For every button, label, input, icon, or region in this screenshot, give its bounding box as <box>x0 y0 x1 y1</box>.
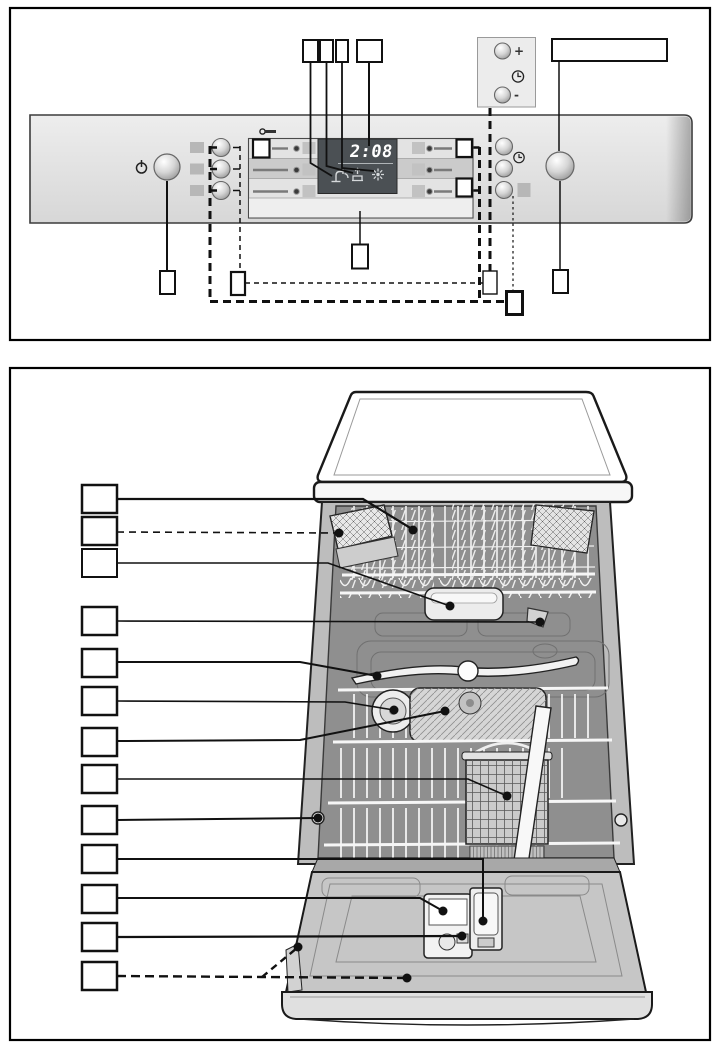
callout-3 <box>82 549 117 577</box>
option-button-right-2[interactable] <box>496 160 513 177</box>
callout-5 <box>82 649 117 677</box>
callout-9 <box>82 806 117 834</box>
option-button-right-3[interactable] <box>496 182 513 199</box>
indicator-leds-left <box>294 142 316 197</box>
callout-10 <box>82 845 117 873</box>
control-panel-figure: 2:08 <box>10 8 710 340</box>
program-button-2[interactable] <box>457 140 473 158</box>
callout-2 <box>82 517 117 545</box>
callout-8 <box>82 765 117 793</box>
timer-inset-box: + - <box>478 38 536 108</box>
callout-box-d <box>357 40 382 62</box>
callout-box-b <box>320 40 333 62</box>
indicator-leds-right <box>412 142 432 197</box>
callout-box-c <box>336 40 348 62</box>
callout-11 <box>82 885 117 913</box>
callout-7 <box>82 728 117 756</box>
callout-box-a <box>303 40 318 62</box>
timer-plus-button[interactable] <box>495 43 511 59</box>
option-window-right <box>518 183 531 197</box>
callout-12 <box>82 923 117 951</box>
interior-callout-boxes <box>82 485 117 990</box>
worktop <box>314 392 632 502</box>
timer-minus-button[interactable] <box>495 87 511 103</box>
callout-box-start <box>553 270 568 293</box>
plus-label: + <box>514 44 524 58</box>
start-button[interactable] <box>546 152 574 180</box>
callout-6 <box>82 687 117 715</box>
program-button-3[interactable] <box>457 179 473 197</box>
callout-box-timer <box>483 271 497 294</box>
interior-figure <box>10 368 710 1040</box>
option-button-right-1[interactable] <box>496 138 513 155</box>
basket-roller-right <box>615 814 627 826</box>
callout-box-infofield <box>352 245 368 269</box>
manual-page: 2:08 <box>0 0 720 1050</box>
minus-label: - <box>514 88 519 102</box>
power-button[interactable] <box>154 154 180 180</box>
callout-box-power <box>160 271 175 294</box>
callout-box-options <box>231 272 245 295</box>
callout-13 <box>82 962 117 990</box>
option-windows-left <box>190 142 204 196</box>
callout-1 <box>82 485 117 513</box>
door-front-edge <box>282 992 652 1019</box>
fascia-edge-shade <box>666 117 691 222</box>
program-button-1[interactable] <box>253 140 270 158</box>
callout-4 <box>82 607 117 635</box>
filter-tray <box>410 688 546 742</box>
top-spray-tray <box>425 588 503 620</box>
callout-box-programs <box>507 292 523 315</box>
callout-box-wide <box>552 39 667 61</box>
remaining-time-display: 2:08 <box>348 142 394 162</box>
inner-door <box>282 858 652 1025</box>
